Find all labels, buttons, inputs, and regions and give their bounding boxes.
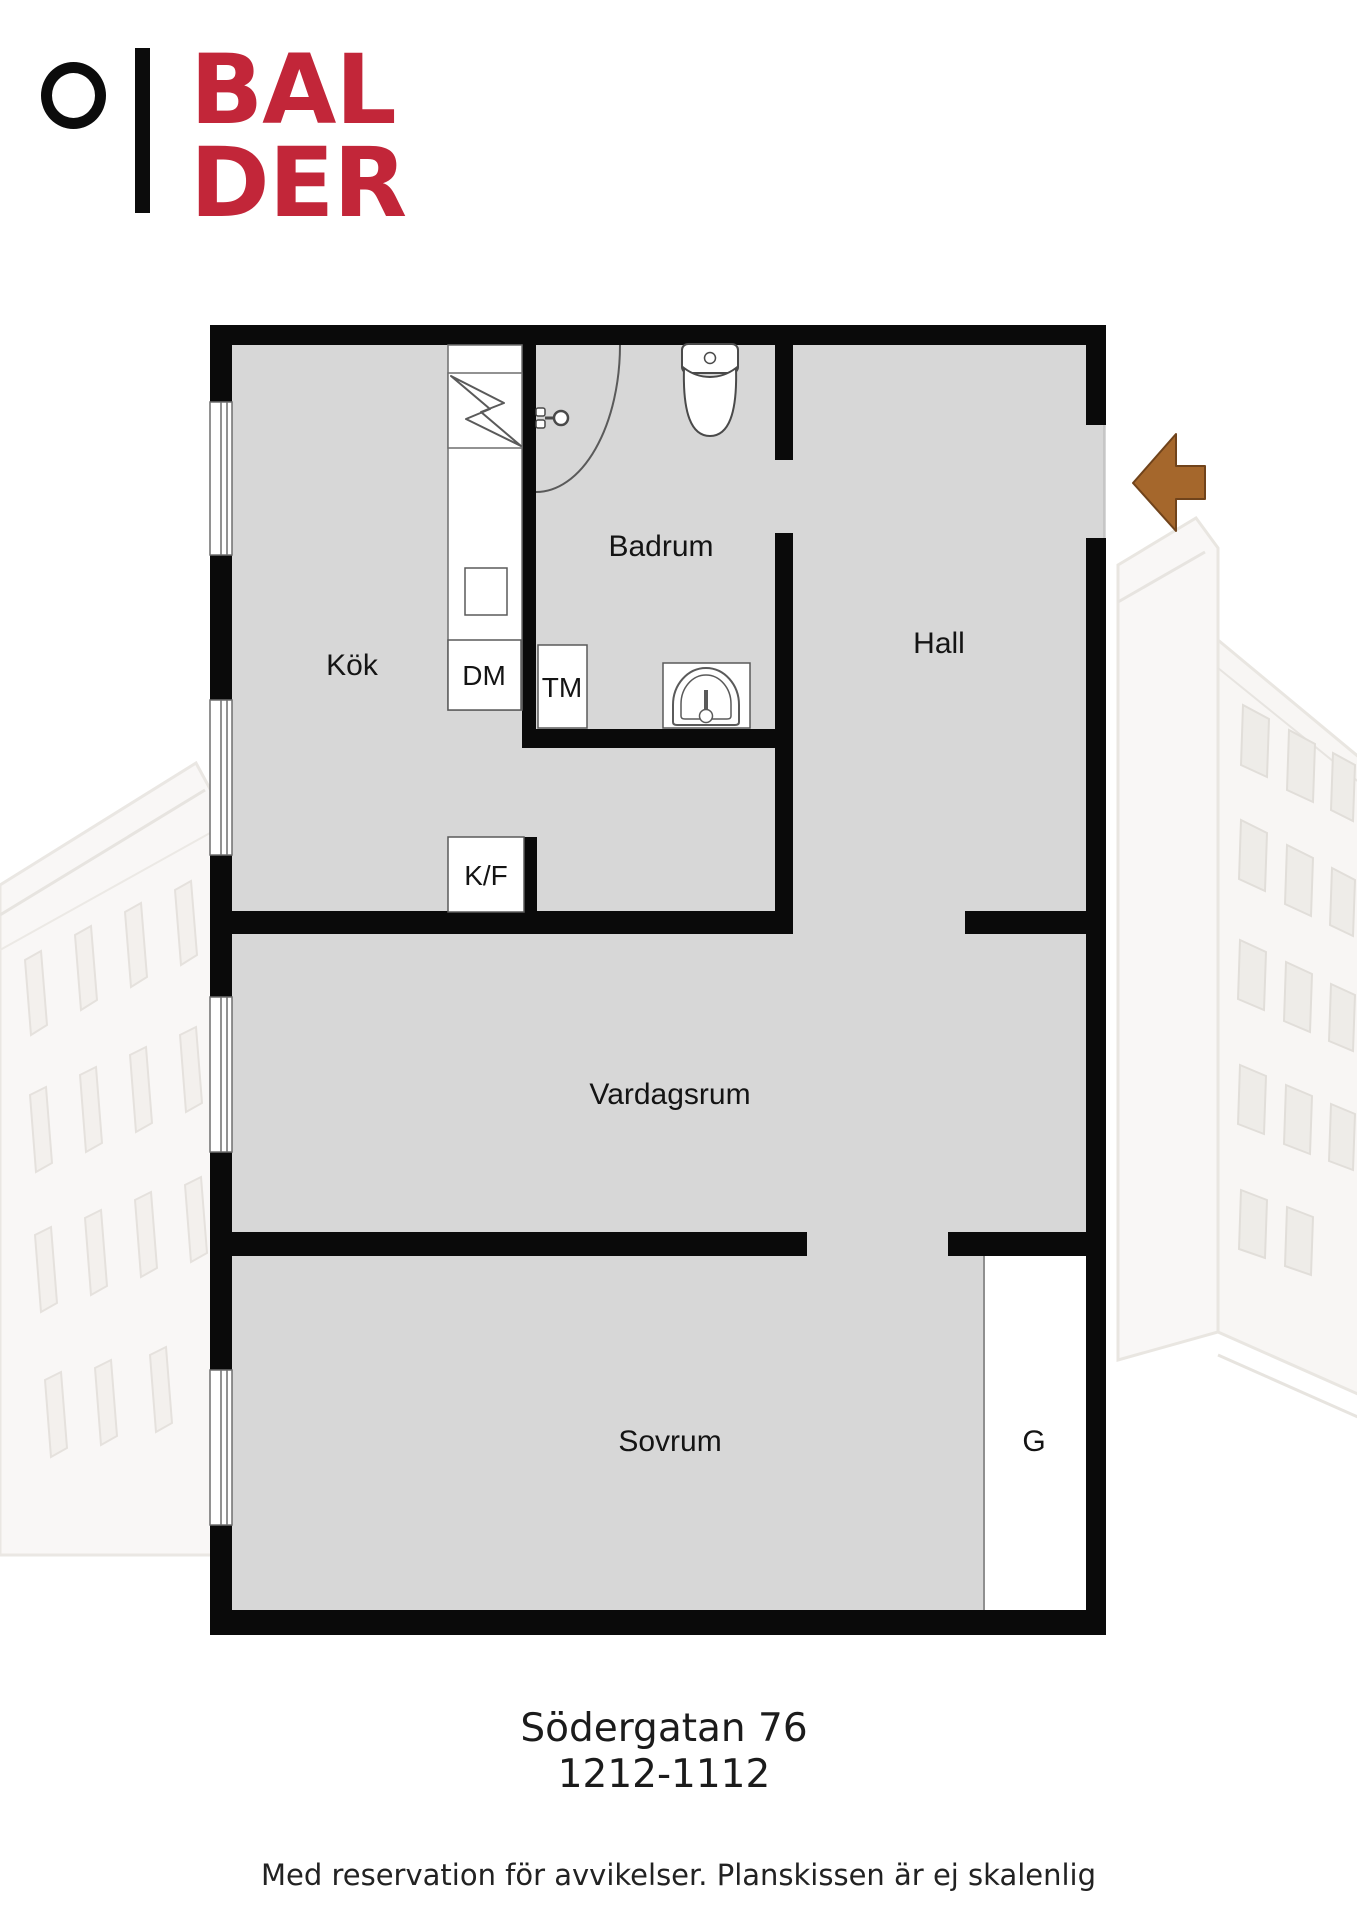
wall [522, 345, 536, 748]
fixture-label-wardrobe: G [1022, 1425, 1045, 1459]
entry-door-opening [1086, 425, 1106, 538]
window-icon [210, 997, 232, 1152]
wall [775, 345, 793, 460]
stove-icon [448, 373, 522, 448]
window-icon [210, 700, 232, 855]
wall [524, 837, 537, 913]
address-block: Södergatan 76 1212-1112 [150, 1706, 1178, 1798]
wall [210, 325, 1106, 345]
fixture-label-dishwasher: DM [462, 660, 506, 692]
room-label-badrum: Badrum [608, 530, 713, 564]
building-sketch-right [1118, 518, 1357, 1418]
wall [210, 911, 793, 934]
fixture-label-washing-machine: TM [542, 672, 582, 704]
floorplan-page: BAL DER [0, 0, 1357, 1920]
wall [210, 555, 232, 700]
toilet-icon [682, 344, 738, 436]
room-label-sovrum: Sovrum [618, 1425, 721, 1459]
wall [210, 1232, 807, 1256]
address-street: Södergatan 76 [150, 1706, 1178, 1752]
wall [965, 911, 1106, 934]
disclaimer-text: Med reservation för avvikelser. Planskis… [0, 1858, 1357, 1892]
kitchen-counter [448, 345, 522, 710]
fixture-label-fridge-freezer: K/F [464, 860, 508, 892]
wall [1086, 325, 1106, 425]
kitchen-sink-icon [465, 568, 507, 615]
wall [210, 325, 232, 402]
bathroom-sink-icon [663, 663, 750, 728]
wall [210, 1525, 232, 1635]
wall [210, 1152, 232, 1370]
window-icon [210, 402, 232, 555]
building-sketch-left [0, 763, 215, 1555]
wall [210, 1610, 1106, 1635]
entry-arrow-icon [1133, 434, 1205, 531]
room-label-hall: Hall [913, 627, 965, 661]
window-icon [210, 1370, 232, 1525]
wall [522, 729, 793, 748]
wall [775, 533, 793, 934]
floorplan-drawing [0, 0, 1357, 1920]
wall [1086, 538, 1106, 1635]
room-label-kok: Kök [326, 649, 378, 683]
room-label-vardagsrum: Vardagsrum [589, 1078, 750, 1112]
wall [948, 1232, 1106, 1256]
address-apartment-id: 1212-1112 [150, 1752, 1178, 1798]
